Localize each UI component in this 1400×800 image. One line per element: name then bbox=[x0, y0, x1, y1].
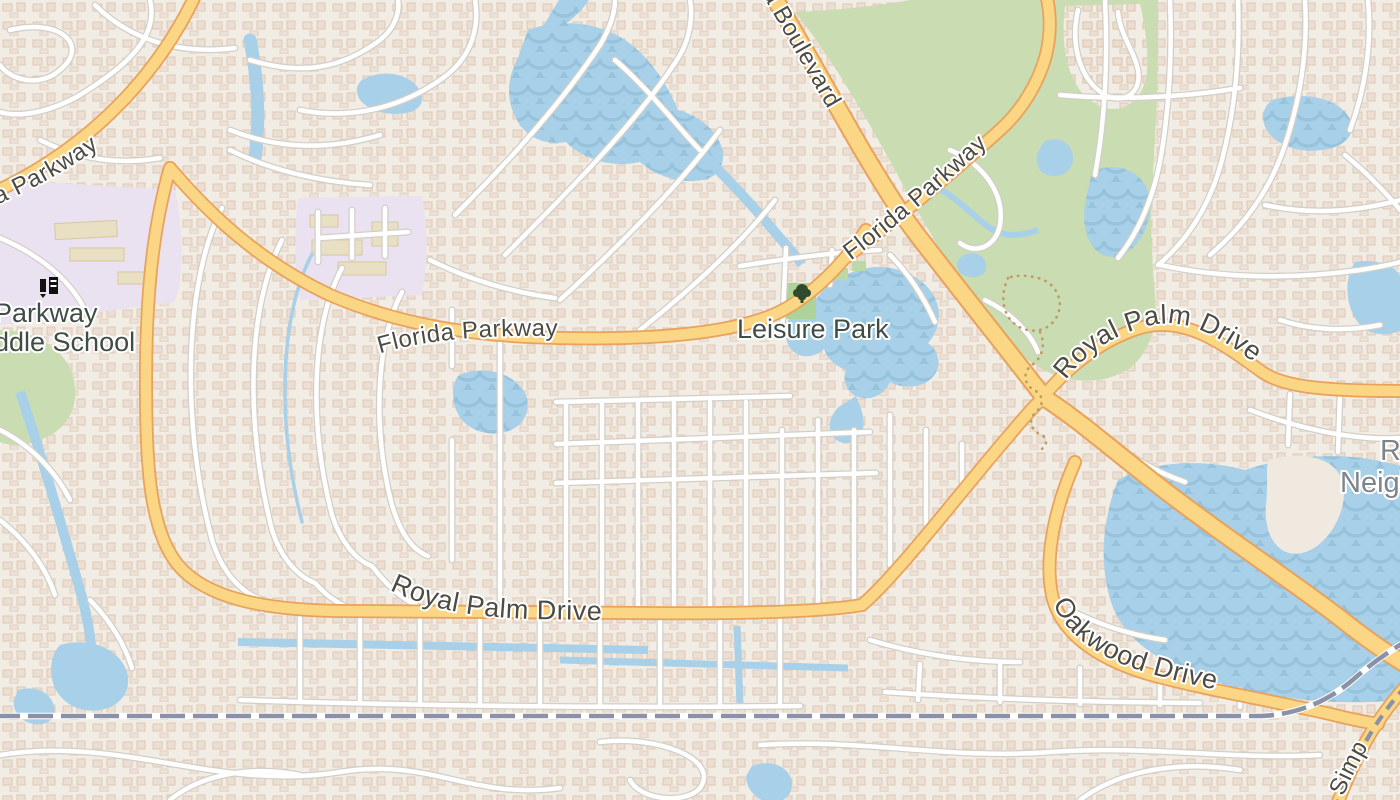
school-label-line1: Parkway bbox=[0, 298, 98, 328]
school-label-line2: ddle School bbox=[0, 327, 135, 357]
street-map[interactable]: a Parkway Parkway ddle School Florida Pa… bbox=[0, 0, 1400, 800]
neighborhood-label-line1: R bbox=[1380, 435, 1400, 467]
leisure-park-label: Leisure Park bbox=[737, 314, 889, 344]
map-canvas[interactable]: a Parkway Parkway ddle School Florida Pa… bbox=[0, 0, 1400, 800]
neighborhood-label-line2: Neigh bbox=[1340, 467, 1400, 499]
